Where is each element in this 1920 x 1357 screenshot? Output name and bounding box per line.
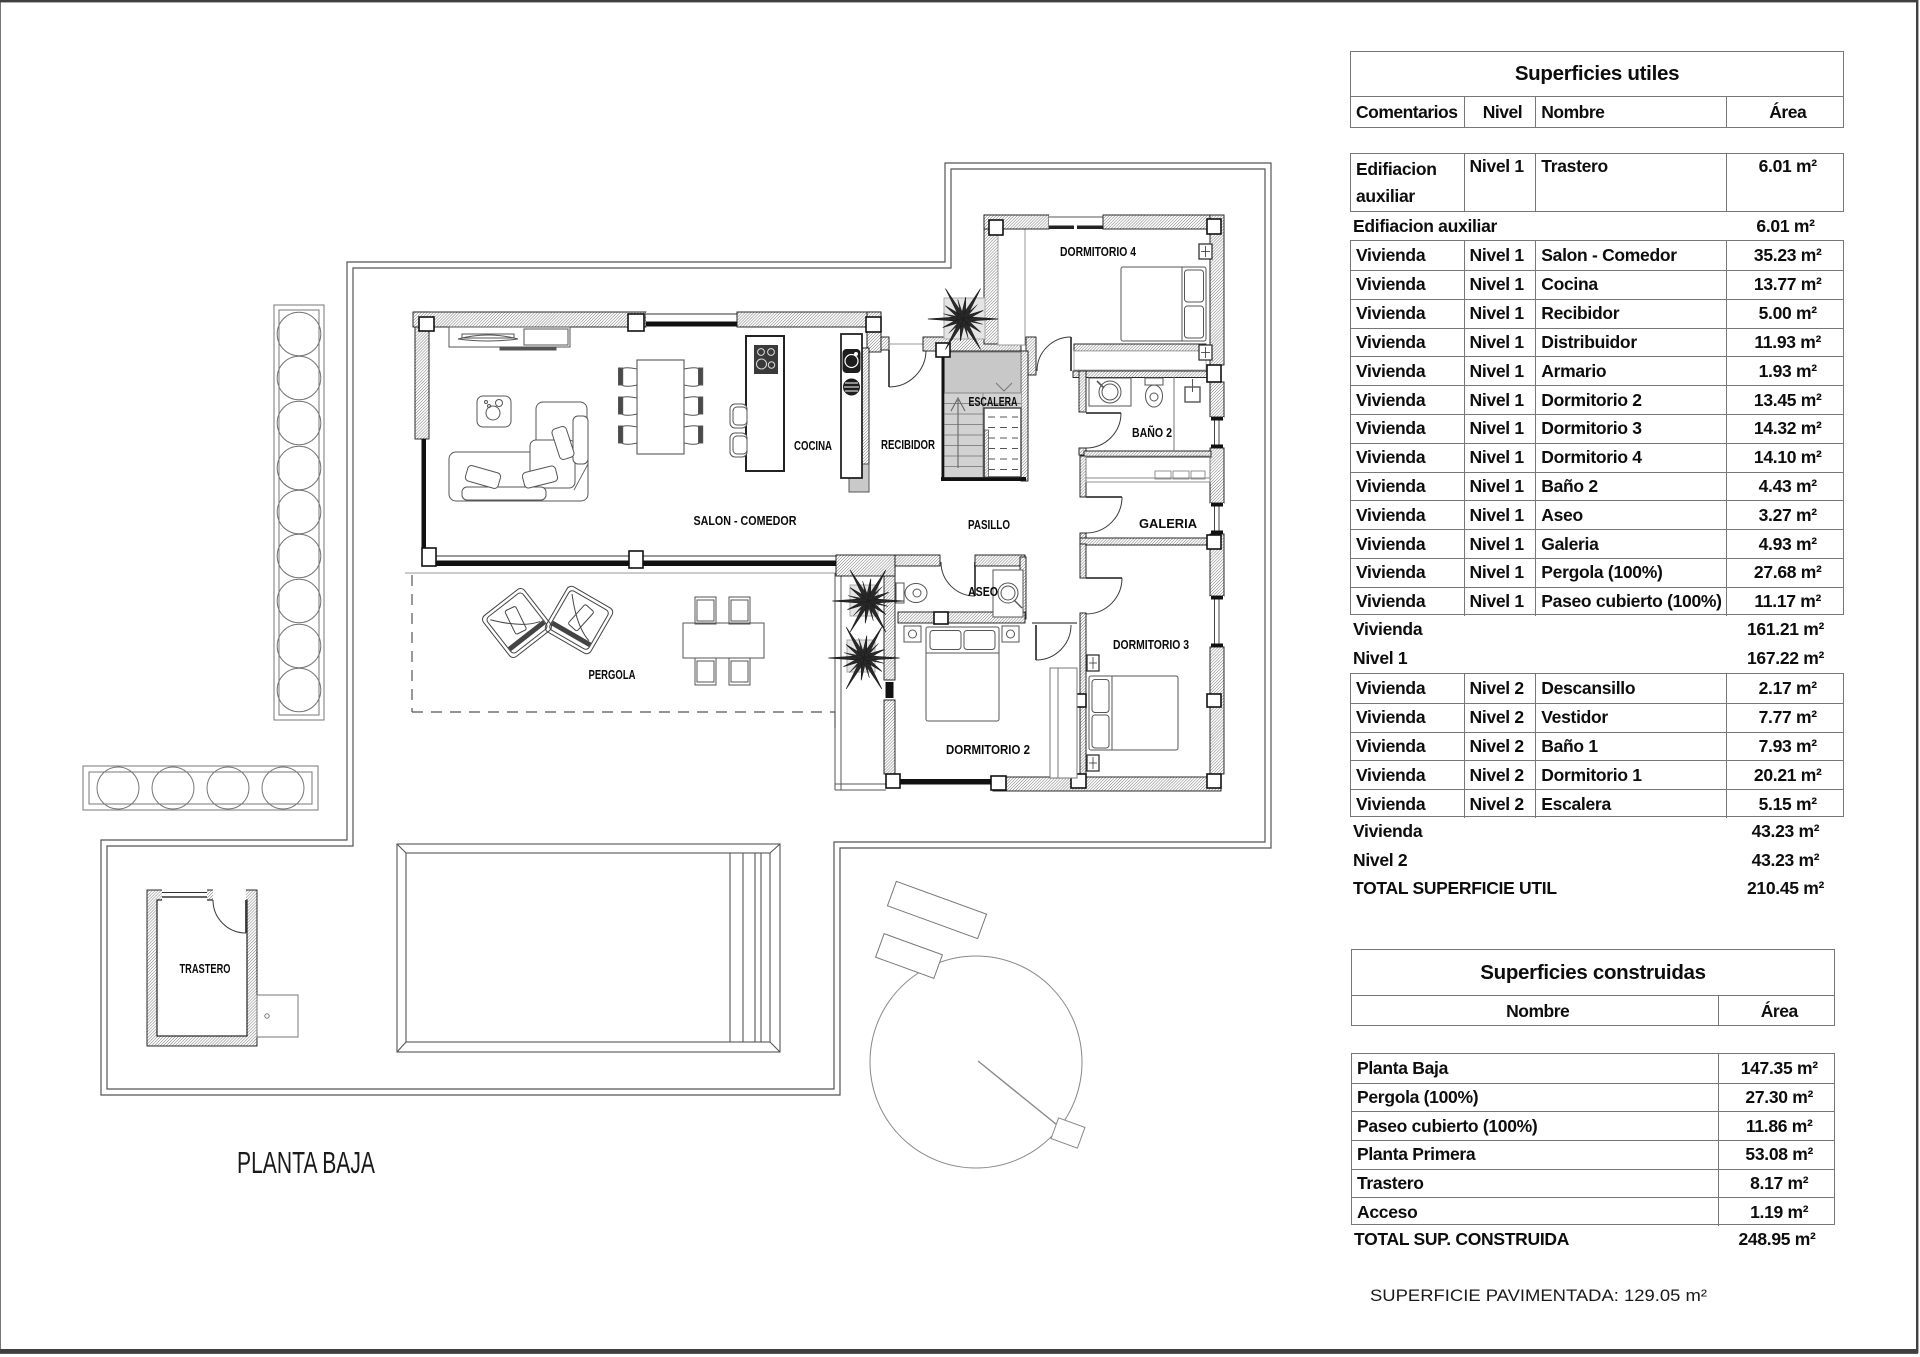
svg-text:ASEO: ASEO bbox=[968, 584, 998, 599]
svg-text:PLANTA BAJA: PLANTA BAJA bbox=[237, 1146, 375, 1180]
svg-text:PASILLO: PASILLO bbox=[968, 517, 1010, 532]
svg-text:COCINA: COCINA bbox=[794, 438, 832, 453]
svg-text:DORMITORIO 4: DORMITORIO 4 bbox=[1060, 244, 1137, 259]
svg-text:BAÑO 2: BAÑO 2 bbox=[1132, 425, 1172, 440]
svg-text:SALON - COMEDOR: SALON - COMEDOR bbox=[694, 513, 797, 528]
svg-text:DORMITORIO 2: DORMITORIO 2 bbox=[946, 742, 1030, 757]
svg-text:PERGOLA: PERGOLA bbox=[589, 667, 636, 682]
svg-text:TRASTERO: TRASTERO bbox=[180, 962, 231, 976]
svg-text:GALERIA: GALERIA bbox=[1139, 516, 1198, 531]
svg-text:DORMITORIO 3: DORMITORIO 3 bbox=[1113, 637, 1189, 652]
svg-text:ESCALERA: ESCALERA bbox=[969, 394, 1018, 409]
svg-text:RECIBIDOR: RECIBIDOR bbox=[881, 437, 935, 452]
